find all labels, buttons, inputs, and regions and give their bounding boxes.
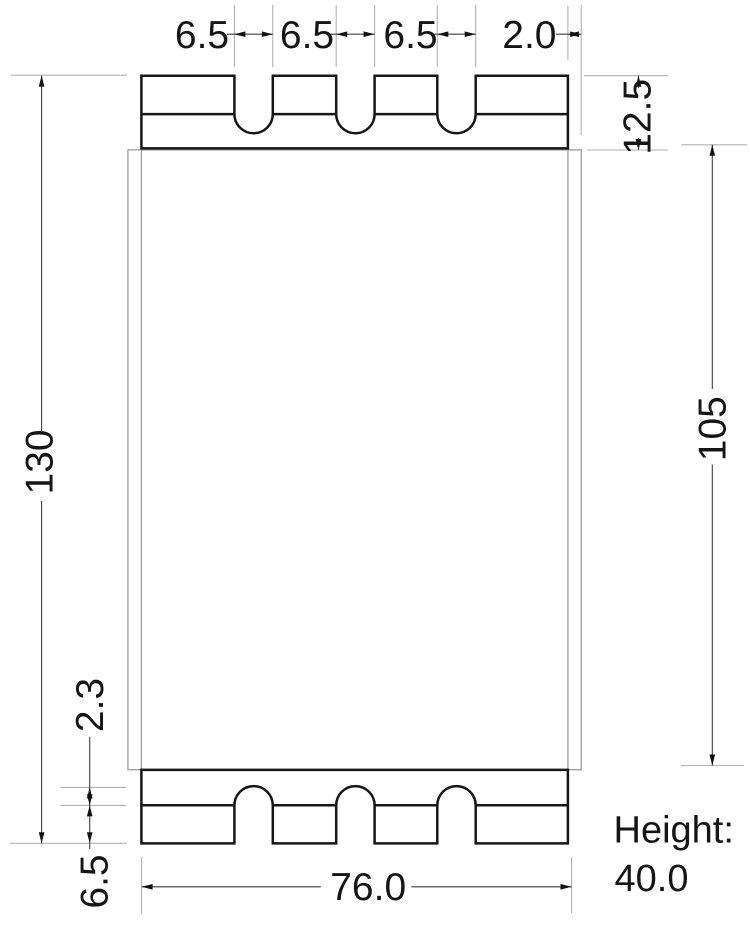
svg-text:130: 130 [19, 429, 62, 494]
svg-text:40.0: 40.0 [615, 858, 689, 900]
svg-text:105: 105 [692, 396, 735, 461]
svg-text:6.5: 6.5 [383, 14, 437, 57]
svg-text:6.5: 6.5 [280, 14, 334, 57]
svg-text:76.0: 76.0 [330, 866, 406, 909]
svg-text:12.5: 12.5 [617, 79, 660, 155]
svg-text:2.3: 2.3 [69, 678, 112, 732]
svg-text:6.5: 6.5 [73, 854, 116, 908]
svg-text:6.5: 6.5 [175, 14, 229, 57]
svg-text:2.0: 2.0 [502, 14, 556, 57]
svg-text:Height:: Height: [614, 810, 734, 852]
